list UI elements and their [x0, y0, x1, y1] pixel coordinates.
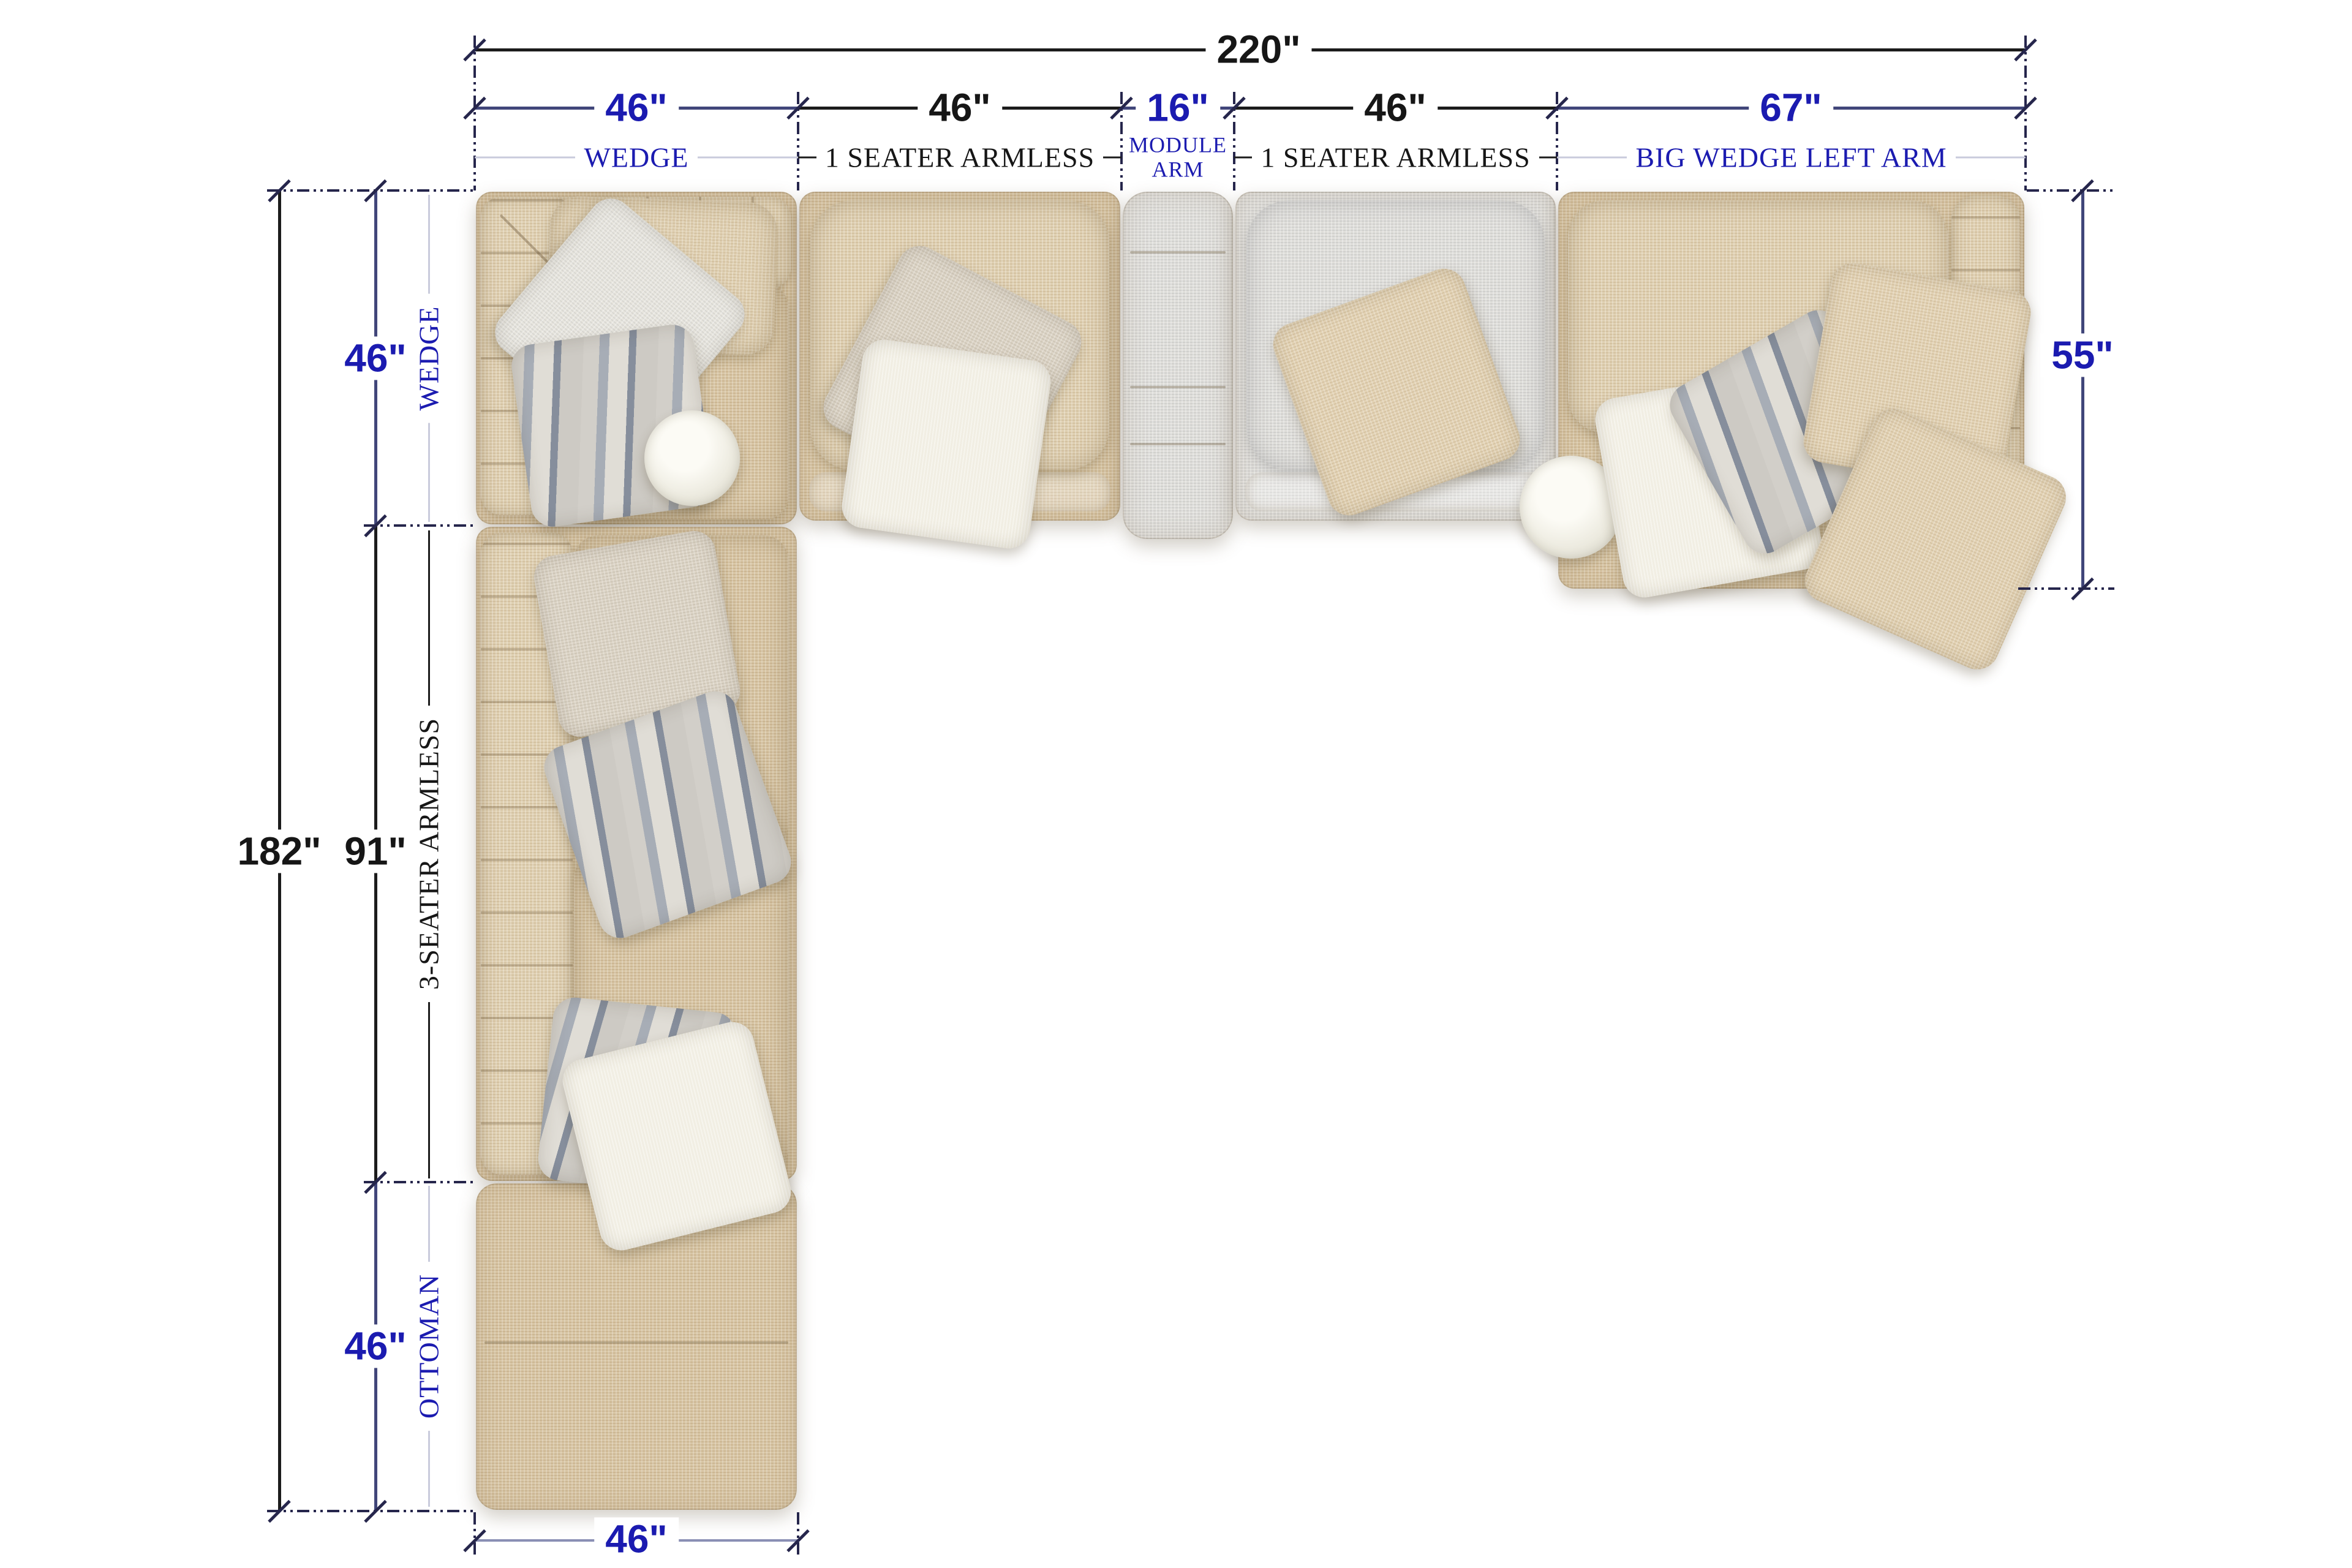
extension-line	[267, 189, 473, 192]
sofa-piece-module-arm	[1123, 192, 1233, 539]
extension-line	[2018, 587, 2114, 590]
section-label-cell: WEDGE	[475, 141, 798, 174]
leader-line	[698, 157, 798, 159]
extension-line	[364, 524, 473, 527]
section-label: WEDGE	[409, 293, 449, 423]
section-label: 3-SEATER ARMLESS	[409, 706, 449, 1002]
round-ball-pillow	[644, 410, 740, 506]
section-label: OTTOMAN	[409, 1262, 449, 1431]
section-label-cell: BIG WEDGE LEFT ARM	[1557, 141, 2026, 174]
leader-line	[798, 157, 816, 159]
segment-height-value: 46"	[333, 1324, 418, 1368]
extension-line	[267, 1510, 473, 1512]
extension-line	[364, 1181, 473, 1183]
diagram-canvas: 220" 46" 46" 16" 46" 67" WEDGE 1 SEATER …	[0, 0, 2352, 1568]
section-label: WEDGE	[575, 141, 697, 174]
segment-width-value: 46"	[1353, 86, 1438, 129]
section-label-cell: 1 SEATER ARMLESS	[798, 141, 1121, 174]
leader-line	[1557, 157, 1627, 159]
leader-line	[1103, 157, 1121, 159]
bottom-width-value: 46"	[594, 1517, 679, 1561]
extension-line	[473, 1512, 476, 1559]
leader-line	[1234, 157, 1252, 159]
right-depth-value: 55"	[2040, 333, 2125, 377]
section-label: BIG WEDGE LEFT ARM	[1627, 141, 1955, 174]
dimension-line-right-depth	[2081, 190, 2084, 589]
leader-line	[475, 157, 575, 159]
ottoman-seam	[484, 1341, 788, 1344]
section-label: MODULE ARM	[1121, 133, 1234, 181]
segment-width-value: 46"	[918, 86, 1002, 129]
overall-width-value: 220"	[1205, 28, 1311, 71]
module-arm-seam	[1130, 251, 1226, 254]
extension-line	[2027, 189, 2114, 192]
module-arm-seam	[1130, 386, 1226, 388]
segment-height-value: 46"	[333, 336, 418, 380]
segment-width-value: 67"	[1749, 86, 1833, 129]
segment-width-value: 16"	[1136, 86, 1220, 129]
segment-height-value: 91"	[333, 829, 418, 873]
throw-pillow	[839, 337, 1053, 551]
section-label-cell: MODULE ARM	[1121, 133, 1234, 181]
section-label: 1 SEATER ARMLESS	[1252, 141, 1539, 174]
overall-height-value: 182"	[226, 829, 332, 873]
extension-line	[797, 1512, 799, 1559]
leader-line	[1539, 157, 1557, 159]
leader-line	[1956, 157, 2026, 159]
module-arm-seam	[1130, 443, 1226, 445]
section-label-cell: 1 SEATER ARMLESS	[1234, 141, 1557, 174]
segment-width-value: 46"	[594, 86, 679, 129]
section-label: 1 SEATER ARMLESS	[816, 141, 1103, 174]
